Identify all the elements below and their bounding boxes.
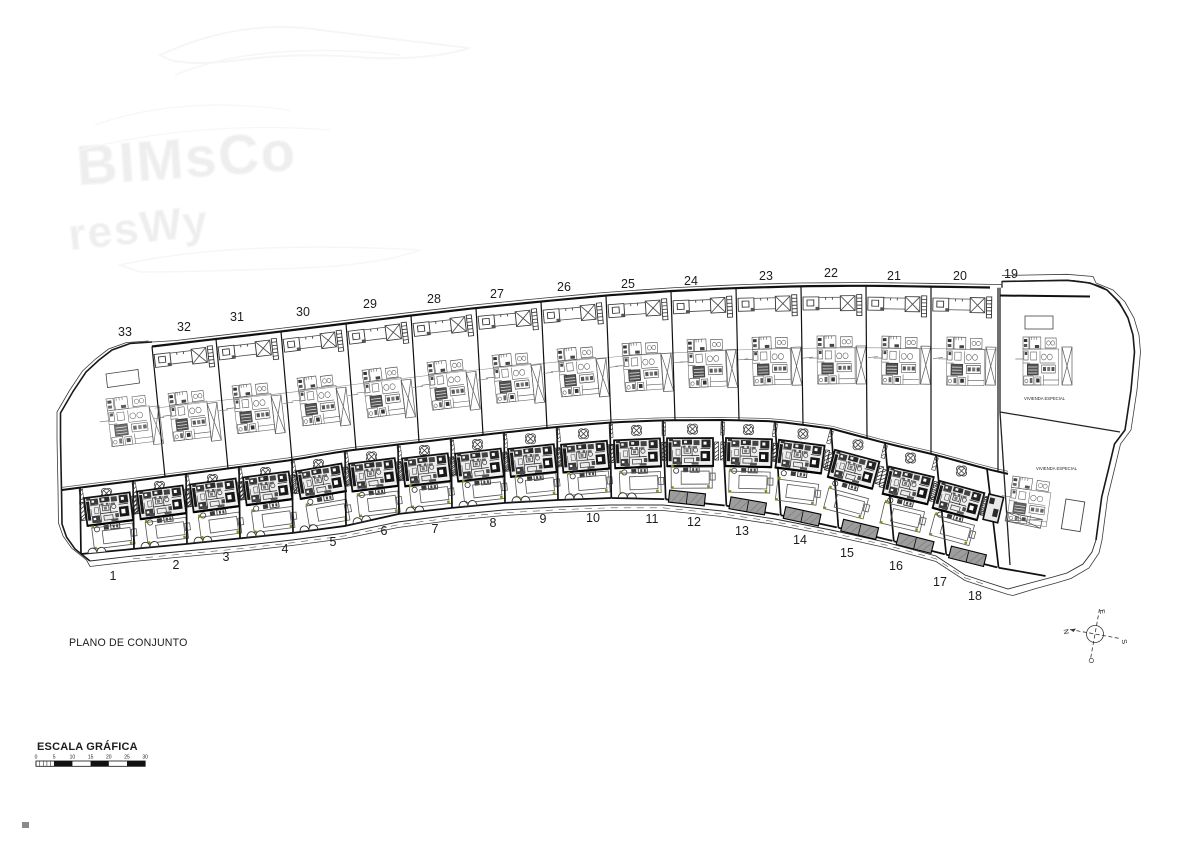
svg-text:4: 4	[282, 542, 289, 556]
svg-text:1: 1	[110, 569, 117, 583]
svg-text:15: 15	[88, 755, 94, 761]
svg-text:10: 10	[586, 511, 600, 525]
svg-text:6: 6	[381, 524, 388, 538]
svg-text:20: 20	[106, 755, 112, 761]
svg-text:10: 10	[70, 755, 76, 761]
svg-text:23: 23	[759, 269, 773, 283]
svg-text:VIVIENDA ESPECIAL: VIVIENDA ESPECIAL	[1024, 396, 1066, 401]
svg-text:30: 30	[142, 755, 148, 761]
svg-text:19: 19	[1004, 267, 1018, 281]
svg-text:15: 15	[840, 546, 854, 560]
svg-text:3: 3	[223, 550, 230, 564]
svg-text:30: 30	[296, 305, 310, 319]
svg-text:VIVIENDA ESPECIAL: VIVIENDA ESPECIAL	[1036, 466, 1078, 471]
svg-text:21: 21	[887, 269, 901, 283]
svg-text:5: 5	[330, 535, 337, 549]
svg-text:2: 2	[173, 558, 180, 572]
svg-text:8: 8	[490, 516, 497, 530]
svg-text:9: 9	[540, 512, 547, 526]
svg-text:13: 13	[735, 524, 749, 538]
svg-text:17: 17	[933, 575, 947, 589]
svg-text:12: 12	[687, 515, 701, 529]
svg-text:20: 20	[953, 269, 967, 283]
svg-text:25: 25	[621, 277, 635, 291]
svg-text:18: 18	[968, 589, 982, 603]
svg-text:22: 22	[824, 266, 838, 280]
svg-text:PLANO DE CONJUNTO: PLANO DE CONJUNTO	[69, 637, 188, 649]
svg-text:26: 26	[557, 280, 571, 294]
svg-text:0: 0	[35, 755, 38, 761]
svg-text:7: 7	[432, 522, 439, 536]
svg-text:32: 32	[177, 320, 191, 334]
svg-text:16: 16	[889, 559, 903, 573]
svg-text:29: 29	[363, 297, 377, 311]
svg-text:28: 28	[427, 292, 441, 306]
svg-text:33: 33	[118, 325, 132, 339]
svg-text:5: 5	[53, 755, 56, 761]
svg-text:31: 31	[230, 310, 244, 324]
svg-text:11: 11	[646, 512, 659, 526]
svg-text:25: 25	[124, 755, 130, 761]
svg-text:ESCALA GRÁFICA: ESCALA GRÁFICA	[37, 740, 138, 753]
svg-text:14: 14	[793, 533, 807, 547]
svg-text:27: 27	[490, 287, 504, 301]
svg-text:24: 24	[684, 274, 698, 288]
